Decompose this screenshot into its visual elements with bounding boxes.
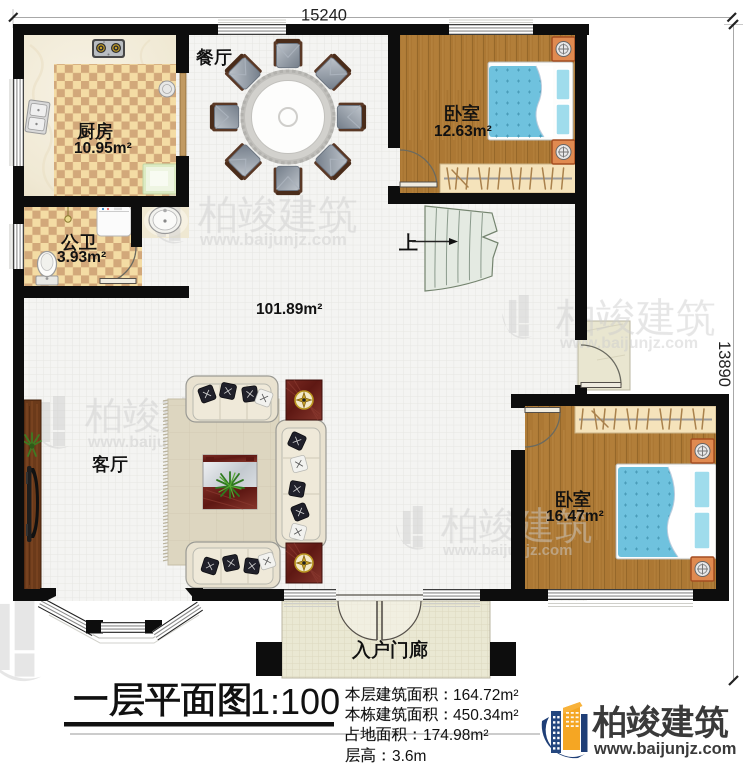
svg-text:1:100: 1:100 xyxy=(250,681,340,722)
svg-text:16.47m²: 16.47m² xyxy=(546,508,604,525)
svg-text:www.baijunjz.com: www.baijunjz.com xyxy=(199,230,347,249)
svg-text:www.baijunjz.com: www.baijunjz.com xyxy=(442,542,572,559)
svg-text:15240: 15240 xyxy=(301,7,347,25)
svg-text:3.93m²: 3.93m² xyxy=(57,249,106,266)
svg-text:10.95m²: 10.95m² xyxy=(74,140,132,157)
svg-text:164.72m²: 164.72m² xyxy=(453,687,518,704)
svg-text:450.34m²: 450.34m² xyxy=(453,707,518,724)
svg-text:101.89m²: 101.89m² xyxy=(256,301,322,318)
svg-text:12.63m²: 12.63m² xyxy=(434,123,492,140)
svg-text:174.98m²: 174.98m² xyxy=(423,727,488,744)
svg-text:13890: 13890 xyxy=(715,341,733,387)
svg-text:www.baijunjz.com: www.baijunjz.com xyxy=(593,740,736,758)
svg-text:3.6m: 3.6m xyxy=(392,748,426,765)
